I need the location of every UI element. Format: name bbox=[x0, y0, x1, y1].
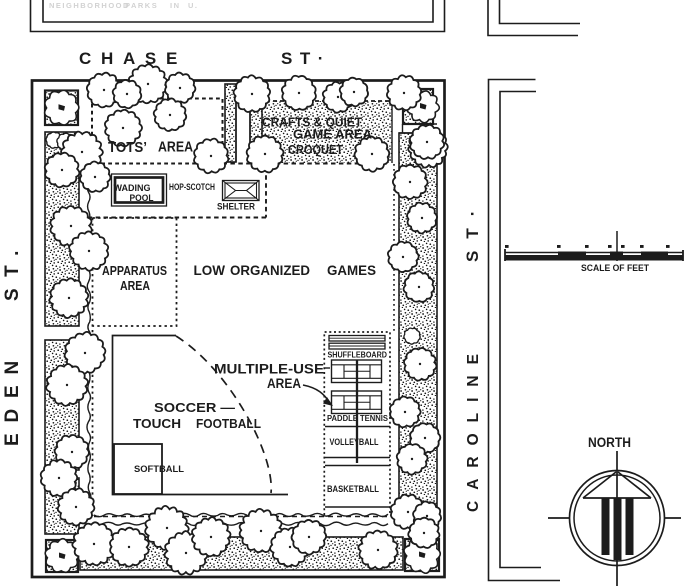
svg-text:CAROLINE: CAROLINE bbox=[465, 343, 482, 512]
svg-text:MULTIPLE-USE: MULTIPLE-USE bbox=[214, 362, 324, 377]
svg-text:TOUCH: TOUCH bbox=[133, 417, 181, 431]
svg-text:U.: U. bbox=[188, 1, 199, 10]
svg-text:LOW: LOW bbox=[194, 263, 226, 278]
svg-text:GAMES: GAMES bbox=[327, 263, 376, 278]
svg-text:AREA: AREA bbox=[120, 279, 150, 293]
svg-text:NEIGHBORHOOD: NEIGHBORHOOD bbox=[49, 1, 130, 10]
svg-text:WADING: WADING bbox=[114, 183, 151, 193]
svg-text:PADDLE TENNIS: PADDLE TENNIS bbox=[327, 414, 388, 423]
svg-text:ST·: ST· bbox=[463, 199, 482, 262]
svg-text:GAME AREA: GAME AREA bbox=[293, 128, 372, 142]
svg-text:ORGANIZED: ORGANIZED bbox=[230, 263, 310, 278]
svg-text:BASKETBALL: BASKETBALL bbox=[327, 484, 379, 494]
svg-text:SCALE OF FEET: SCALE OF FEET bbox=[581, 263, 650, 273]
svg-text:POOL: POOL bbox=[130, 193, 155, 203]
svg-text:FOOTBALL: FOOTBALL bbox=[196, 417, 261, 431]
svg-text:ST·: ST· bbox=[281, 49, 331, 68]
svg-text:SHELTER: SHELTER bbox=[217, 202, 255, 212]
svg-text:APPARATUS: APPARATUS bbox=[102, 264, 167, 278]
svg-text:ST.: ST. bbox=[2, 239, 23, 301]
svg-text:IN: IN bbox=[170, 1, 181, 10]
svg-text:AREA: AREA bbox=[158, 140, 193, 156]
svg-text:SOCCER —: SOCCER — bbox=[154, 401, 236, 415]
svg-text:CROQUET: CROQUET bbox=[288, 143, 343, 157]
svg-text:HOP-SCOTCH: HOP-SCOTCH bbox=[169, 182, 215, 192]
svg-text:CHASE: CHASE bbox=[79, 49, 187, 68]
svg-text:TOTS’: TOTS’ bbox=[108, 140, 147, 156]
svg-text:SHUFFLEBOARD: SHUFFLEBOARD bbox=[328, 351, 388, 360]
svg-text:SOFTBALL: SOFTBALL bbox=[134, 464, 184, 474]
svg-text:AREA: AREA bbox=[267, 376, 301, 391]
svg-text:EDEN: EDEN bbox=[2, 350, 23, 446]
svg-text:VOLLEYBALL: VOLLEYBALL bbox=[330, 437, 380, 447]
svg-text:PARKS: PARKS bbox=[125, 1, 158, 10]
svg-text:NORTH: NORTH bbox=[588, 435, 631, 450]
